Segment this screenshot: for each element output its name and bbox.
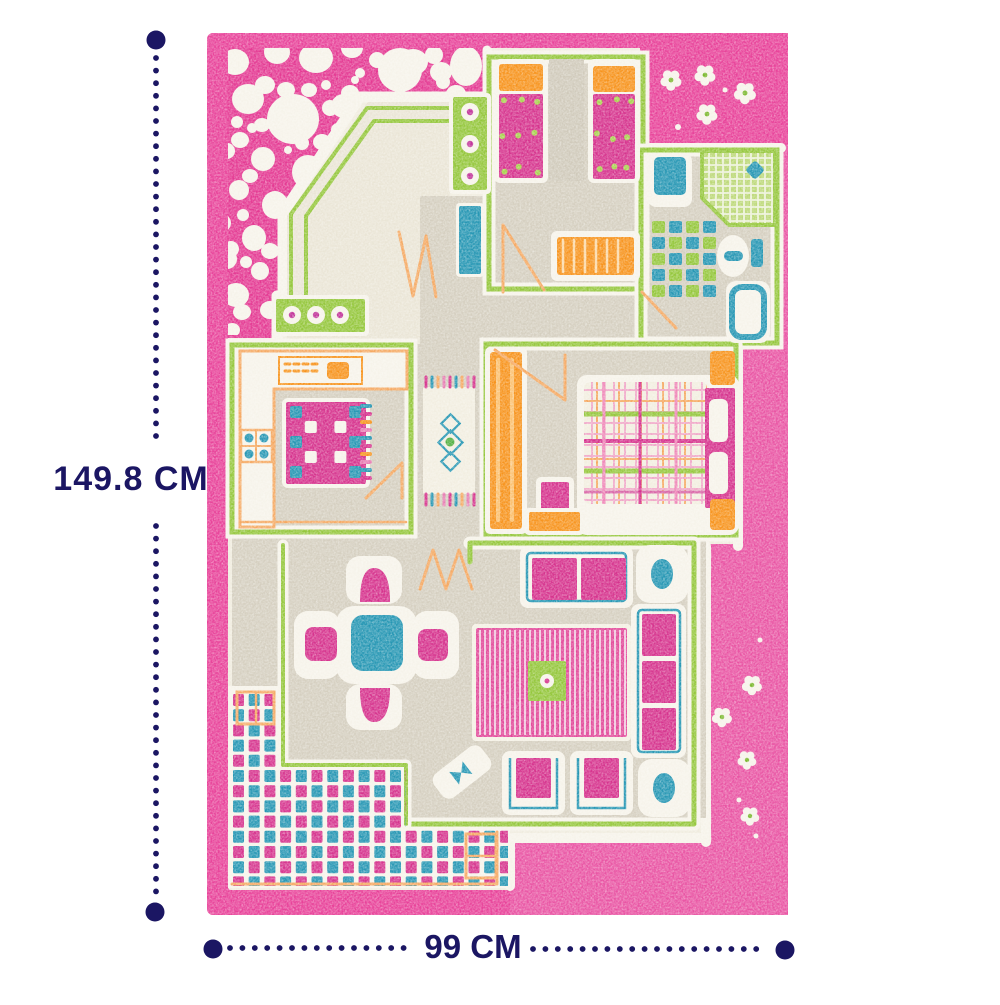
svg-text:149.8 CM: 149.8 CM <box>53 460 208 498</box>
svg-text:99 CM: 99 CM <box>424 928 521 965</box>
